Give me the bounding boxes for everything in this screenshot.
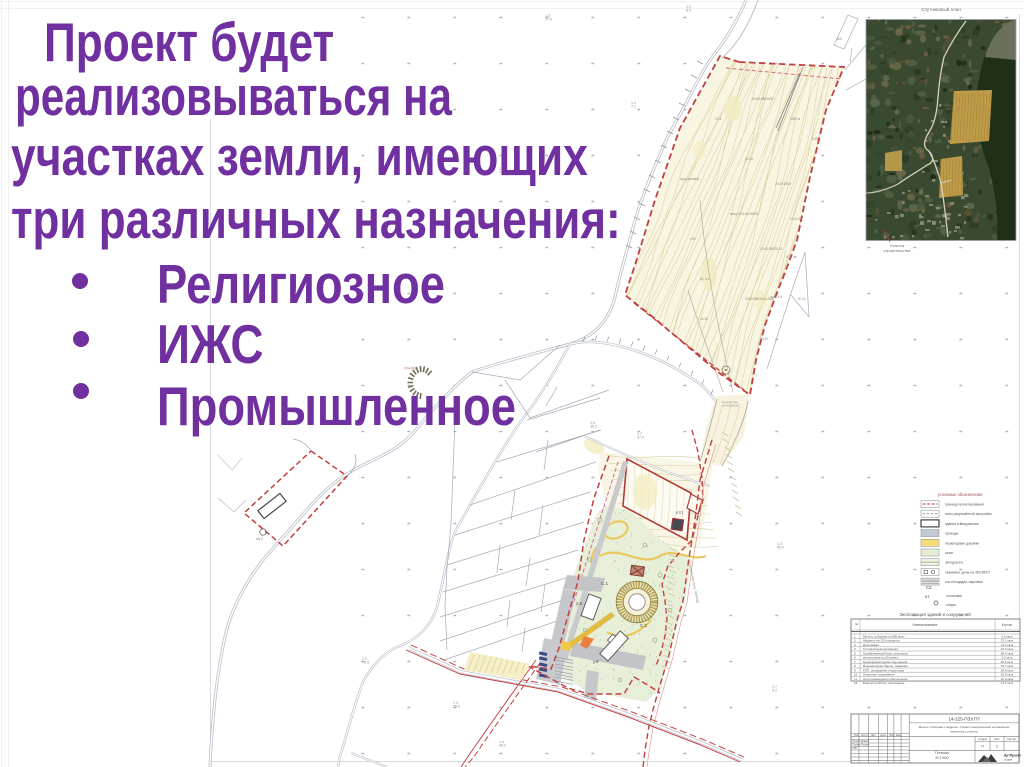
svg-text:скамейки, урны на 350 МОП: скамейки, урны на 350 МОП <box>945 570 990 574</box>
svg-text:автодорога: автодорога <box>945 561 963 565</box>
svg-text:12: 12 <box>854 681 858 685</box>
svg-text:С.1: С.1 <box>601 581 609 586</box>
svg-text:проезд сущ.23:40:05030: проезд сущ.23:40:05030 <box>722 400 739 407</box>
svg-text:газон: газон <box>945 551 953 555</box>
svg-text:КТ: КТ <box>925 594 930 599</box>
svg-text:М 1:500: М 1:500 <box>936 756 949 760</box>
svg-text:Кол.уч: Кол.уч <box>861 735 869 737</box>
svg-text:граница проектирования: граница проектирования <box>945 503 984 507</box>
svg-text:Разраб.: Разраб. <box>853 741 862 743</box>
svg-text:остановки: остановки <box>946 594 962 598</box>
svg-text:Ж 23: Ж 23 <box>798 297 806 301</box>
svg-text:Экспликация зданий и сооружени: Экспликация зданий и сооружений <box>899 612 971 617</box>
svg-text:здания и сооружения: здания и сооружения <box>945 522 979 526</box>
svg-text:проезды: проезды <box>945 532 959 536</box>
svg-text:2: 2 <box>996 745 998 749</box>
svg-text:сущ.клдб: сущ.клдб <box>404 366 418 370</box>
svg-text:ул. Советская (сущ. проезд): ул. Советская (сущ. проезд) <box>687 559 700 603</box>
svg-text:зоны разрешённой застройки: зоны разрешённой застройки <box>945 512 992 516</box>
svg-text:АртПроект: АртПроект <box>1004 754 1021 758</box>
svg-text:С2: С2 <box>926 585 932 590</box>
svg-text:1452 м: 1452 м <box>790 117 800 121</box>
svg-text:2.6: 2.6 <box>576 601 583 606</box>
svg-text:1.325.5: 1.325.5 <box>453 701 460 708</box>
svg-text:23:40:0503001: 23:40:0503001 <box>752 97 773 101</box>
svg-text:1.747.0: 1.747.0 <box>637 432 644 439</box>
svg-text:47.1 кв.м: 47.1 кв.м <box>1001 681 1013 685</box>
svg-text:Генплан: Генплан <box>935 751 949 755</box>
svg-text:сущ. рельеф: сущ. рельеф <box>680 177 699 181</box>
svg-text:Петров: Петров <box>861 745 869 747</box>
svg-text:485: 485 <box>836 37 842 41</box>
svg-text:Листов: Листов <box>1007 737 1016 741</box>
svg-text:1.360.0: 1.360.0 <box>777 542 784 549</box>
svg-text:23:40:0503001:264: 23:40:0503001:264 <box>745 297 773 301</box>
svg-text:Дата: Дата <box>896 735 902 737</box>
svg-text:уч. 6-1: уч. 6-1 <box>700 277 710 281</box>
svg-text:23:40:05030:12: 23:40:05030:12 <box>760 247 782 251</box>
svg-text:№док: №док <box>880 734 887 737</box>
svg-text:Иванов: Иванов <box>861 741 870 743</box>
svg-text:1.79.2: 1.79.2 <box>772 685 777 692</box>
svg-text:хоз.площадки, парковки: хоз.площадки, парковки <box>945 580 983 584</box>
svg-text:1.536.2: 1.536.2 <box>590 421 597 428</box>
svg-text:Спутниковый план: Спутниковый план <box>921 6 961 12</box>
svg-text:у.8: у.8 <box>593 659 599 664</box>
svg-text:14-225-ПЗУ.ГП: 14-225-ПЗУ.ГП <box>948 717 979 722</box>
svg-text:Кол-во: Кол-во <box>1002 623 1013 627</box>
svg-text:1.17.1: 1.17.1 <box>631 101 636 108</box>
svg-text:условные обозначения: условные обозначения <box>938 492 983 497</box>
svg-text:5.26: 5.26 <box>812 137 818 141</box>
svg-text:земельного участка: земельного участка <box>950 730 978 734</box>
svg-text:ГИП: ГИП <box>853 748 858 750</box>
svg-text:зем.уч 23:40:05030: зем.уч 23:40:05030 <box>730 212 758 216</box>
svg-text:Подп: Подп <box>889 735 895 737</box>
svg-text:С.2: С.2 <box>640 623 648 628</box>
svg-text:уч.14: уч.14 <box>745 157 753 161</box>
svg-text:Лист: Лист <box>994 737 1001 741</box>
svg-text:Наименование: Наименование <box>913 623 938 627</box>
svg-text:14-52: 14-52 <box>700 317 708 321</box>
svg-text:з/у 2: з/у 2 <box>256 537 263 541</box>
svg-text:1.464.2: 1.464.2 <box>499 740 506 747</box>
svg-text:23:40:0503: 23:40:0503 <box>775 182 791 186</box>
svg-text:12.4: 12.4 <box>715 117 721 121</box>
svg-text:студия: студия <box>1004 759 1013 762</box>
svg-text:строительства: строительства <box>884 248 912 253</box>
svg-text:т.45: т.45 <box>690 237 696 241</box>
svg-text:1.28.0: 1.28.0 <box>686 5 691 12</box>
svg-text:КТП: КТП <box>676 511 683 515</box>
svg-text:Мечеть соборная с медресе. Схе: Мечеть соборная с медресе. Схема планиро… <box>919 725 1010 729</box>
svg-text:1.517.6: 1.517.6 <box>545 14 552 21</box>
svg-text:Благоустройство, озеленение: Благоустройство, озеленение <box>863 681 905 685</box>
svg-text:пешеходные дорожки: пешеходные дорожки <box>945 541 979 545</box>
svg-text:h=12.5: h=12.5 <box>790 217 800 221</box>
svg-text:Изм: Изм <box>854 735 859 737</box>
svg-text:опоры: опоры <box>946 603 956 607</box>
svg-text:1.278.5: 1.278.5 <box>362 657 369 664</box>
svg-text:Стадия: Стадия <box>978 737 988 741</box>
